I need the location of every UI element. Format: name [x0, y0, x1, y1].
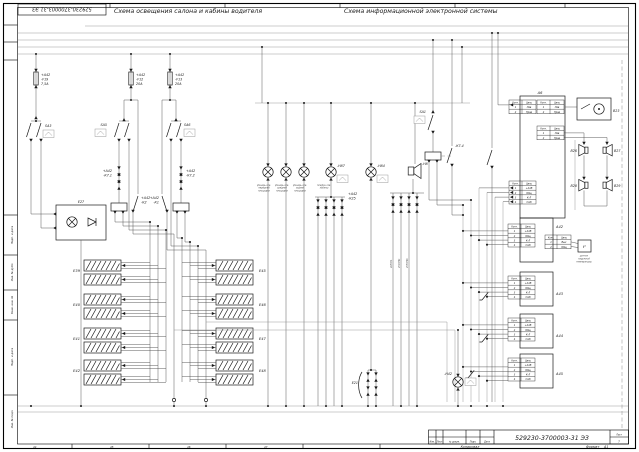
- lamp-caption: кабины: [320, 187, 329, 190]
- speaker-icon: [579, 180, 588, 191]
- module-label-e47: Е47: [259, 337, 267, 341]
- table-cell: 2: [514, 329, 516, 332]
- table-header: Цепь: [554, 128, 560, 131]
- table-cell: Прав: [526, 111, 533, 114]
- fuse-label: +А42: [136, 73, 145, 77]
- connector-table: Конт. Цепь 1 Лев 2 Прав: [537, 100, 564, 114]
- a44-label: А44: [555, 334, 564, 338]
- zone-number: 45: [110, 445, 114, 449]
- drawing-frame: 44 45 46 47 Подп. и дата Инв. № дубл. Вз…: [4, 4, 636, 450]
- table-cell: 1: [515, 106, 517, 109]
- tb-ndoc: № докум.: [448, 441, 460, 444]
- stack-blocks: А42 Конт. Цепь 1 +24В 2 Общ 3 К-Л 4 CAN …: [462, 218, 592, 388]
- table-header: Конт.: [540, 128, 547, 131]
- table-cell: CAN: [525, 244, 530, 247]
- fuse-label: +А42: [175, 73, 184, 77]
- table-header: Цепь: [525, 320, 531, 323]
- table-cell: 4: [514, 296, 516, 299]
- table-cell: К-Л: [526, 239, 531, 242]
- table-cell: CAN: [525, 296, 530, 299]
- module-label-e41: Е41: [73, 337, 80, 341]
- side-label: Инв. № подл.: [10, 410, 14, 429]
- table-cell: 1: [550, 241, 552, 244]
- side-label: Подп. и дата: [10, 347, 14, 366]
- table-cell: +24В: [525, 282, 532, 285]
- zone-number: 47: [264, 445, 268, 449]
- table-cell: К-Л: [527, 196, 532, 199]
- lamp-3: фонарь осв. задней площадки: [293, 103, 309, 406]
- table-cell: Лев: [554, 106, 560, 109]
- relay-k72-label: +А42: [186, 169, 195, 173]
- table-cell: CAN: [525, 378, 530, 381]
- table-cell: CAN: [525, 338, 530, 341]
- connector-table: Конт. Цепь 1 Лев 2 Прав: [537, 126, 564, 140]
- table-cell: CAN: [526, 201, 531, 204]
- pictogram-icon: [184, 129, 195, 137]
- table-cell: Общ: [525, 369, 531, 372]
- light-unit-e27: [56, 205, 106, 240]
- lamp-icon: [67, 217, 77, 227]
- tb-list: Лист: [436, 441, 443, 444]
- module-label-e46: Е46: [259, 303, 267, 307]
- tb-data: Дата: [483, 441, 490, 444]
- fuse-label: -F19: [41, 78, 48, 82]
- e21-label: Е21: [352, 381, 358, 385]
- lamp-caption: площадки: [294, 189, 306, 192]
- fuse-label: -F12: [136, 78, 143, 82]
- fuse-f13-circuit: +А42 -F13 20А SA6 +А42 -К7.2 +А42 -К1: [150, 54, 206, 250]
- contact-chain-3: [487, 33, 494, 402]
- table-cell: Лев: [526, 106, 532, 109]
- lamp-2: фонарь осв. средней площадки: [275, 103, 291, 406]
- switch-sa1-chain: SA1: [414, 40, 471, 205]
- lamp-1: фонарь осв. передней площадки: [257, 103, 273, 406]
- tb-kopiroval: Копировал: [461, 445, 481, 449]
- sensor-caption: температуры: [576, 261, 592, 264]
- table-header: Конт.: [512, 183, 519, 186]
- tb-format-label: Формат: [586, 445, 599, 449]
- table-cell: Прав: [554, 111, 561, 114]
- a43-label: А43: [555, 292, 564, 296]
- temp-symbol: t°: [583, 245, 586, 249]
- title-left: Схема освещения салона и кабины водителя: [114, 7, 262, 15]
- contact-k74-chain: -К7.4: [441, 40, 464, 215]
- table-header: Конт.: [511, 226, 518, 229]
- device-e21: Е21: [352, 369, 378, 406]
- module-label-e45: Е45: [259, 269, 267, 273]
- lamp-modules: Е39 Е40 Е41 Е42 Е45 Е46 Е47 Е48: [73, 260, 266, 385]
- sensor-connector: Конт. Цепь 1 Вых 2 Общ t° датчик наружно…: [545, 235, 592, 264]
- pictogram-icon: [414, 116, 425, 124]
- speakers: В26 В27 В28 В29: [564, 133, 621, 210]
- module-rows-left: Е39 Е40 Е41 Е42: [73, 260, 121, 385]
- speaker-icon: [579, 145, 588, 156]
- table-cell: 1: [514, 282, 516, 285]
- tb-podp: Подп.: [470, 441, 477, 444]
- table-cell: 1: [543, 132, 545, 135]
- table-cell: Общ: [525, 287, 531, 290]
- lamp-h87: -Н87 плафон осв. кабины +А42 -К25: [315, 103, 357, 406]
- table-cell: 2: [543, 137, 545, 140]
- relay-coil: [425, 152, 441, 160]
- diode-block-label: +А42: [348, 192, 357, 196]
- table-cell: 4: [514, 244, 516, 247]
- switch-sa3-label: SA3: [45, 124, 51, 128]
- horn-icon: [408, 164, 421, 179]
- table-header: Конт.: [540, 102, 547, 105]
- h84-label: -Н84: [377, 164, 385, 168]
- a6-label: А6: [537, 91, 543, 95]
- table-header: Конт.: [512, 102, 519, 105]
- diode-stack: [391, 193, 418, 406]
- device-b23: В23: [565, 98, 619, 120]
- diode-icon: [88, 218, 96, 226]
- diode-stack: [316, 197, 343, 406]
- top-bus-lines: [18, 26, 628, 55]
- side-label: Взам. инв. №: [10, 296, 14, 314]
- table-cell: Вых: [562, 241, 568, 244]
- fuse-label: 20А: [175, 82, 182, 86]
- module-label-e48: Е48: [259, 369, 267, 373]
- table-cell: 1: [515, 187, 517, 190]
- switch-sa6-label: SA6: [184, 123, 190, 127]
- document-number: 529230-3700003-31 ЭЗ: [515, 435, 589, 442]
- schematic-sheet: 44 45 46 47 Подп. и дата Инв. № дубл. Вз…: [0, 0, 639, 452]
- table-header: Конт.: [511, 278, 518, 281]
- table-header: Цепь: [525, 226, 531, 229]
- contact-k2-label: -К2: [141, 201, 147, 205]
- table-cell: 2: [550, 246, 552, 249]
- wire-number: 451ГР91: [398, 258, 401, 268]
- pictogram-icon: [43, 130, 54, 138]
- table-cell: 3: [514, 333, 516, 336]
- table-header: Цепь: [554, 102, 560, 105]
- a45-label: А45: [555, 372, 564, 376]
- relay-coil-k71: [111, 203, 127, 211]
- pictogram-icon: [95, 129, 106, 137]
- relay-k72-label: -К7.2: [186, 174, 195, 178]
- table-cell: +24В: [525, 230, 532, 233]
- b27-label: В27: [614, 149, 621, 153]
- table-cell: 2: [514, 369, 516, 372]
- fuse-label: 7,5А: [41, 82, 49, 86]
- table-header: Конт.: [511, 320, 518, 323]
- e27-label: Е27: [78, 200, 85, 204]
- wire-number: 455ГР96: [406, 258, 409, 268]
- relay-k71-label: -К7.1: [103, 174, 112, 178]
- table-cell: К-Л: [526, 291, 531, 294]
- lamp-caption: площадки: [276, 189, 288, 192]
- switch-sa5-label: SA5: [101, 123, 107, 127]
- table-cell: К-Л: [526, 373, 531, 376]
- tb-sheet-label: Лист: [615, 434, 622, 437]
- schematic-drawing: 44 45 46 47 Подп. и дата Инв. № дубл. Вз…: [0, 0, 639, 452]
- table-cell: 2: [514, 235, 516, 238]
- block-a43: А43 Конт. Цепь 1 +24В 2 Общ 3 К-Л 4 CAN: [462, 272, 564, 306]
- buzzer-h8: -Н8 405ГРА 451ГР91 455ГР96: [390, 103, 428, 406]
- h8-label: -Н8: [422, 162, 428, 166]
- table-cell: Общ: [525, 235, 531, 238]
- stamp-number: 529230-3700003-31 ЭЗ: [31, 6, 91, 12]
- table-cell: +24В: [525, 364, 532, 367]
- tb-sheet-value: 7: [618, 440, 620, 444]
- fuse-label: +А42: [41, 73, 50, 77]
- contact-k1-label: -К1: [153, 201, 159, 205]
- module-stubs: [121, 263, 216, 383]
- tb-format-value: А1: [603, 445, 608, 449]
- a42-label: А42: [555, 225, 564, 229]
- table-cell: 1: [514, 230, 516, 233]
- wire-harness: -Н42: [174, 188, 503, 406]
- table-cell: 4: [515, 201, 517, 204]
- table-cell: Лев: [554, 132, 560, 135]
- block-a45: А45 Конт. Цепь 1 +24В 2 Общ 3 К-Л 4 CAN: [462, 354, 564, 388]
- table-cell: +24В: [525, 324, 532, 327]
- table-header: Цепь: [561, 237, 567, 240]
- speaker-icon: [603, 180, 612, 191]
- table-cell: Общ: [525, 329, 531, 332]
- module-label-e40: Е40: [73, 303, 81, 307]
- pictogram-icon: [377, 175, 388, 183]
- b23-label: В23: [613, 109, 619, 113]
- table-cell: 1: [514, 324, 516, 327]
- connector-table: Конт. Цепь 1 Лев 2 Прав: [509, 100, 536, 114]
- pictogram-icon: [465, 378, 476, 386]
- table-header: Конт.: [548, 237, 555, 240]
- lamp-caption: площадки: [258, 189, 270, 192]
- table-cell: 4: [514, 338, 516, 341]
- pictogram-icon: [337, 175, 348, 183]
- zone-number: 46: [187, 445, 191, 449]
- table-cell: 3: [514, 291, 516, 294]
- fuse-label: -F13: [175, 78, 182, 82]
- wire-number: 405ГРА: [390, 259, 393, 268]
- contact-k1-label: +А42: [150, 196, 159, 200]
- table-cell: +24В: [526, 187, 533, 190]
- title-block: Изм. Лист № докум. Подп. Дата 529230-370…: [429, 430, 629, 449]
- module-label-e42: Е42: [73, 369, 81, 373]
- table-cell: 3: [514, 239, 516, 242]
- table-cell: Общ: [526, 192, 532, 195]
- title-right: Схема информационной электронной системы: [344, 8, 498, 15]
- relay-k71-label: +А42: [103, 169, 112, 173]
- side-label: Инв. № дубл.: [10, 263, 14, 282]
- side-label: Подп. и дата: [10, 225, 14, 244]
- titles: 529230-3700003-31 ЭЗ Схема освещения сал…: [18, 4, 498, 15]
- table-cell: Общ: [561, 246, 567, 249]
- module-label-e39: Е39: [73, 269, 81, 273]
- relay-coil-k72: [173, 203, 189, 211]
- table-cell: 2: [514, 287, 516, 290]
- table-cell: 3: [515, 196, 517, 199]
- b26-label: В26: [571, 149, 577, 153]
- table-cell: 3: [514, 373, 516, 376]
- cabin-lamps: фонарь осв. передней площадки фонарь осв…: [255, 47, 470, 406]
- table-cell: 2: [543, 111, 545, 114]
- bottom-bus-lines: [18, 405, 628, 412]
- table-cell: Прав: [554, 137, 561, 140]
- block-a42: А42 Конт. Цепь 1 +24В 2 Общ 3 К-Л 4 CAN …: [462, 218, 592, 264]
- table-cell: 1: [543, 106, 545, 109]
- table-cell: 4: [514, 378, 516, 381]
- h87-label: -Н87: [337, 164, 346, 168]
- tb-izm: Изм.: [430, 441, 435, 444]
- b28-label: В28: [571, 184, 577, 188]
- diode-block-label: -К25: [348, 197, 356, 201]
- module-rows-right: Е45 Е46 Е47 Е48: [216, 260, 267, 385]
- switch-sa1-label: SA1: [420, 110, 426, 114]
- zone-number: 44: [33, 445, 37, 449]
- table-cell: 1: [514, 364, 516, 367]
- contact-k74-label: -К7.4: [455, 144, 464, 148]
- table-cell: К-Л: [526, 333, 531, 336]
- b29-label: В29: [614, 184, 620, 188]
- table-header: Цепь: [526, 102, 532, 105]
- block-a44: А44 Конт. Цепь 1 +24В 2 Общ 3 К-Л 4 CAN: [462, 314, 564, 348]
- table-header: Цепь: [525, 278, 531, 281]
- speaker-icon: [603, 145, 612, 156]
- table-cell: 2: [515, 192, 517, 195]
- fuse-label: 20А: [136, 82, 143, 86]
- table-header: Цепь: [526, 183, 532, 186]
- right-chains: SA1 -К7.4: [414, 33, 494, 402]
- block-a6: А6 Конт. Цепь 1 Лев 2 Прав Конт. Цепь 1 …: [479, 33, 621, 218]
- h42-label: -Н42: [444, 372, 452, 376]
- table-header: Конт.: [511, 360, 518, 363]
- table-header: Цепь: [525, 360, 531, 363]
- table-cell: 2: [515, 111, 517, 114]
